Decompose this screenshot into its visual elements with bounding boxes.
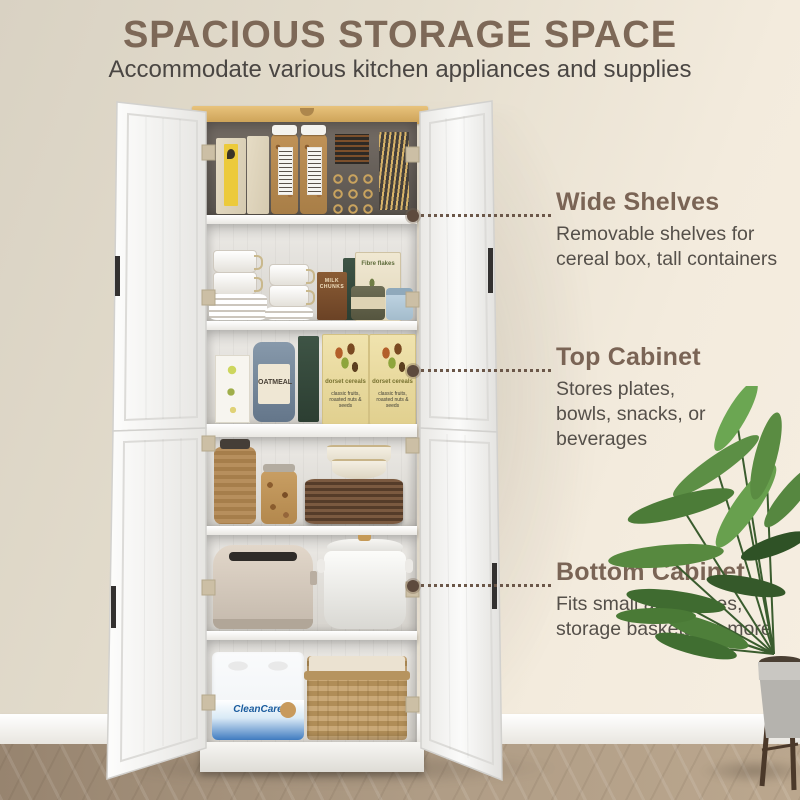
door-hinges [202,145,419,712]
page-title: SPACIOUS STORAGE SPACE [0,14,800,57]
left-upper-door-handle [115,256,120,296]
left-upper-door [113,102,206,431]
callout-line-top-cabinet [421,369,551,372]
plant-pot [758,656,800,738]
product-infographic: SPACIOUS STORAGE SPACE Accommodate vario… [0,0,800,800]
callout-heading: Top Cabinet [556,343,796,372]
right-lower-door [420,428,502,780]
left-lower-door-handle [111,586,116,628]
callout-dot-wide-shelves [407,210,419,222]
callout-dot-bottom-cabinet [407,580,419,592]
callout-wide-shelves: Wide Shelves Removable shelves for cerea… [556,188,796,272]
potted-plant [596,386,800,800]
callout-line-bottom-cabinet [421,584,551,587]
plant-leaves [607,386,800,665]
right-upper-door [420,101,497,432]
callout-body-line: Removable shelves for [556,222,796,247]
right-upper-door-handle [488,248,493,293]
left-lower-door [107,428,206,779]
page-subtitle: Accommodate various kitchen appliances a… [0,56,800,84]
callout-dot-top-cabinet [407,365,419,377]
callout-body-line: cereal box, tall containers [556,247,796,272]
callout-line-wide-shelves [421,214,551,217]
callout-heading: Wide Shelves [556,188,796,217]
